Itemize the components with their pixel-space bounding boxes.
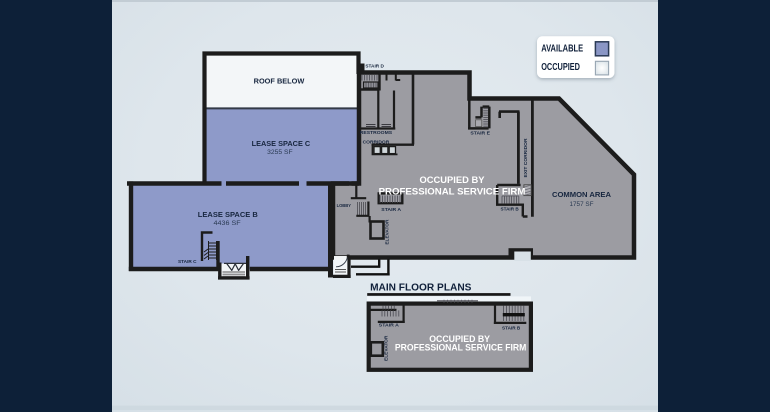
svg-text:3255 SF: 3255 SF — [267, 149, 292, 156]
svg-text:STAIR D: STAIR D — [365, 64, 384, 69]
svg-text:LEASE SPACE B: LEASE SPACE B — [198, 212, 258, 219]
svg-text:STAIR A: STAIR A — [379, 322, 400, 327]
svg-text:LEASE SPACE C: LEASE SPACE C — [252, 141, 311, 148]
svg-text:ELEVATOR: ELEVATOR — [384, 335, 389, 361]
svg-text:OCCUPIED: OCCUPIED — [541, 62, 580, 73]
svg-text:STAIR B: STAIR B — [502, 326, 521, 331]
svg-text:PROFESSIONAL SERVICE FIRM: PROFESSIONAL SERVICE FIRM — [395, 342, 527, 352]
svg-text:STAIR E: STAIR E — [470, 130, 490, 135]
svg-text:OCCUPIED BY: OCCUPIED BY — [420, 175, 486, 186]
svg-text:PROFESSIONAL SERVICE FIRM: PROFESSIONAL SERVICE FIRM — [379, 187, 526, 198]
svg-text:4436 SF: 4436 SF — [214, 220, 241, 227]
svg-text:ELEVATOR: ELEVATOR — [384, 219, 389, 245]
svg-text:1757 SF: 1757 SF — [569, 201, 593, 208]
svg-text:STAIR A: STAIR A — [381, 207, 402, 212]
svg-text:RESTROOMS: RESTROOMS — [360, 130, 392, 135]
svg-text:COMMON AREA: COMMON AREA — [552, 190, 612, 199]
svg-text:ROOF BELOW: ROOF BELOW — [254, 76, 305, 85]
svg-text:EXIT CORRIDOR: EXIT CORRIDOR — [523, 138, 528, 178]
svg-text:LOBBY: LOBBY — [337, 203, 351, 208]
svg-text:MAIN FLOOR PLANS: MAIN FLOOR PLANS — [370, 283, 471, 294]
svg-text:AVAILABLE: AVAILABLE — [541, 43, 583, 54]
svg-text:STAIR B: STAIR B — [501, 206, 520, 211]
svg-text:STAIR C: STAIR C — [178, 259, 197, 264]
